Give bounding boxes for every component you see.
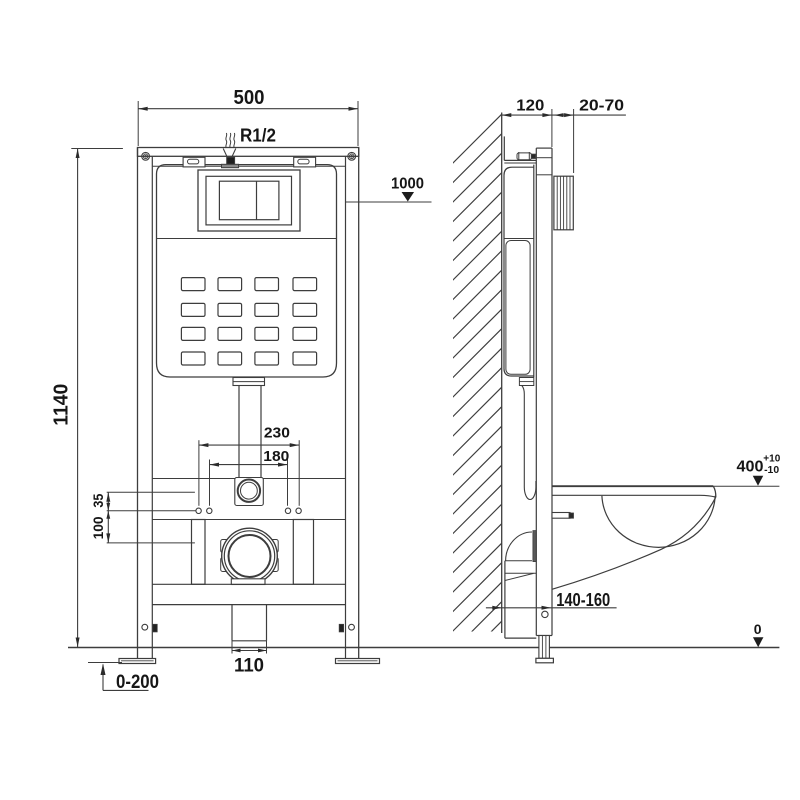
svg-text:35: 35 <box>90 493 106 507</box>
svg-text:180: 180 <box>263 448 289 465</box>
svg-text:230: 230 <box>264 425 290 442</box>
svg-text:1140: 1140 <box>50 384 72 426</box>
svg-text:110: 110 <box>234 656 264 677</box>
svg-text:120: 120 <box>516 97 544 114</box>
svg-text:100: 100 <box>90 516 106 539</box>
svg-text:0: 0 <box>754 621 762 637</box>
svg-text:-10: -10 <box>764 464 779 476</box>
svg-text:1000: 1000 <box>391 175 424 192</box>
svg-text:500: 500 <box>234 87 265 109</box>
svg-text:140-160: 140-160 <box>556 590 610 610</box>
svg-text:400: 400 <box>737 458 764 475</box>
svg-text:+10: +10 <box>763 453 780 465</box>
svg-text:R1/2: R1/2 <box>240 125 276 145</box>
svg-text:20-70: 20-70 <box>579 97 624 114</box>
svg-text:0-200: 0-200 <box>116 672 159 693</box>
